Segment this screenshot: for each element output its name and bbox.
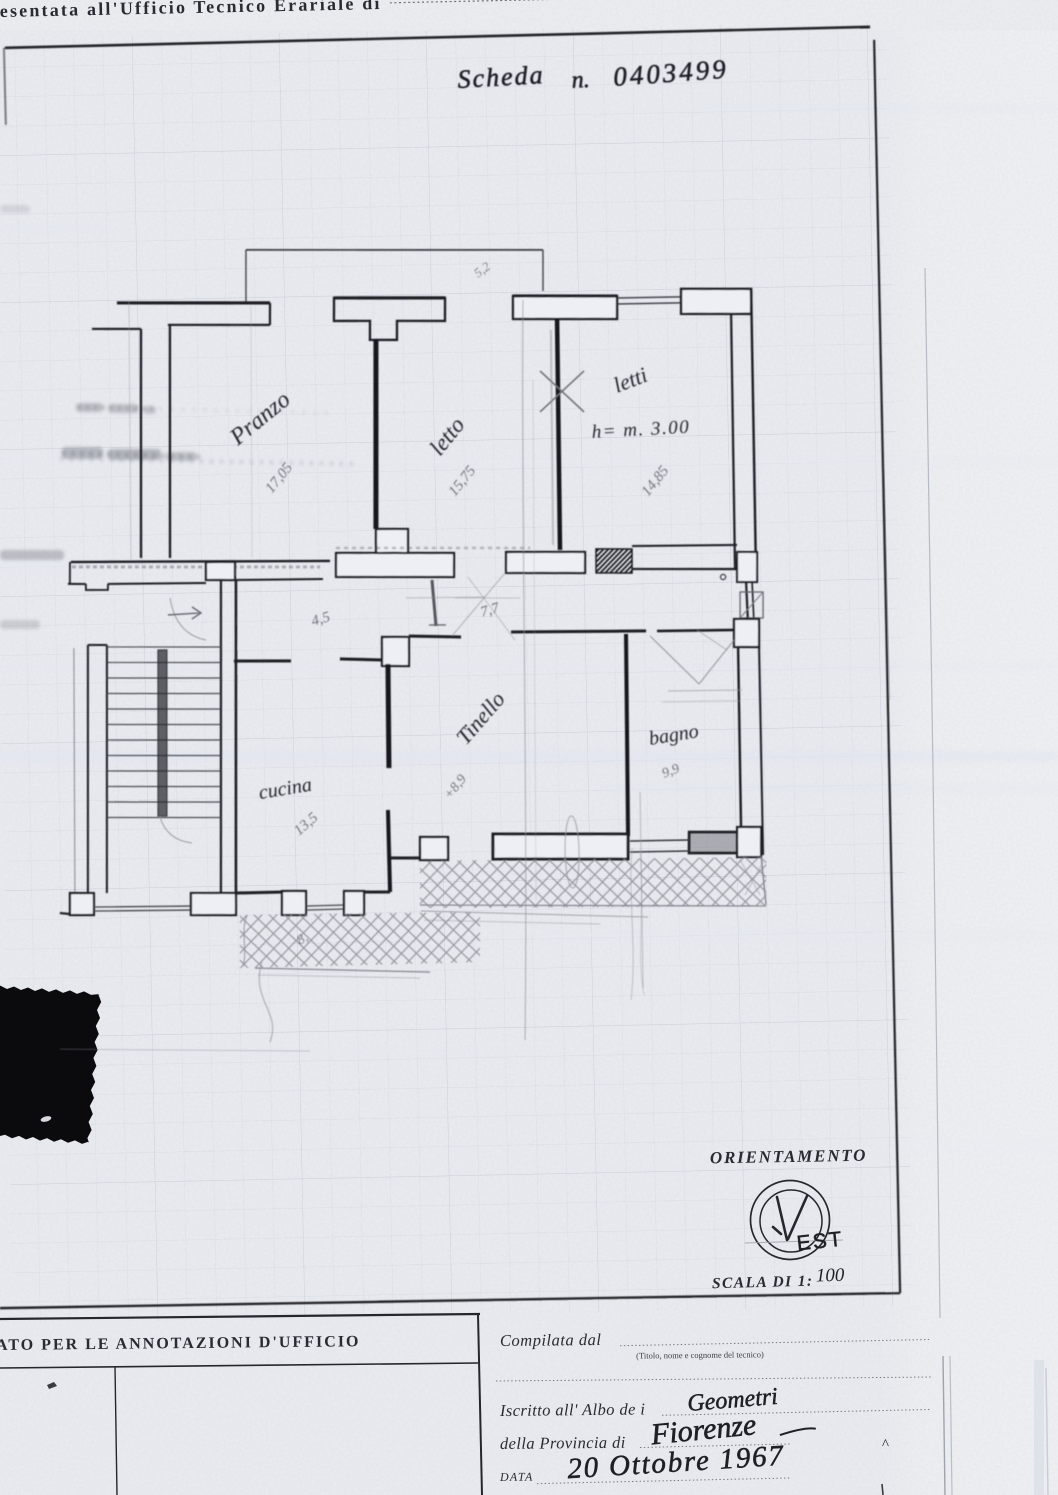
svg-text:DATA: DATA	[499, 1470, 534, 1484]
svg-text:^: ^	[882, 1437, 889, 1453]
svg-text:EST: EST	[796, 1228, 845, 1256]
svg-text:ORIENTAMENTO: ORIENTAMENTO	[710, 1146, 868, 1168]
svg-text:100: 100	[816, 1265, 846, 1287]
svg-text:SCALA DI 1:: SCALA DI 1:	[712, 1273, 814, 1293]
svg-text:(Titolo, nome e cognome del te: (Titolo, nome e cognome del tecnico)	[636, 1349, 764, 1360]
svg-text:Compilata dal: Compilata dal	[500, 1330, 602, 1350]
svg-text:n.: n.	[571, 67, 590, 94]
svg-text:Scheda: Scheda	[457, 60, 546, 94]
svg-text:Iscritto all' Albo de i: Iscritto all' Albo de i	[499, 1399, 646, 1420]
